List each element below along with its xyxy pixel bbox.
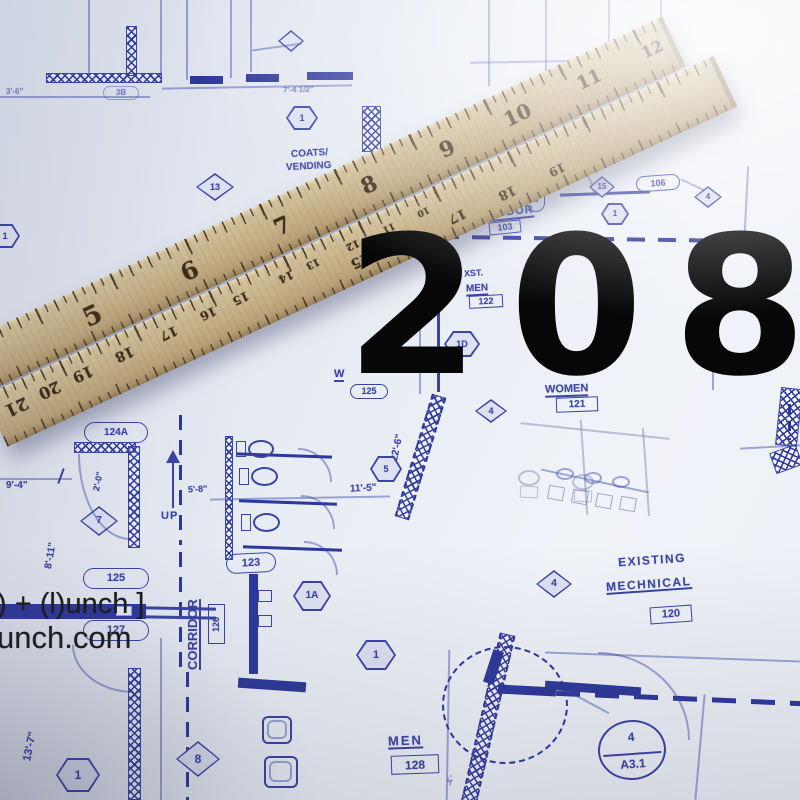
ruler-number: 9	[435, 134, 459, 163]
watermark-line2: unch.com	[0, 620, 131, 656]
watermark-line1: ) + (l)unch ]	[0, 588, 144, 621]
blueprint-photo: 3B3'-6"7'-4 1/2"1COATS/VENDING131CORRIDO…	[0, 0, 800, 800]
overlay-number: 208	[346, 212, 800, 404]
